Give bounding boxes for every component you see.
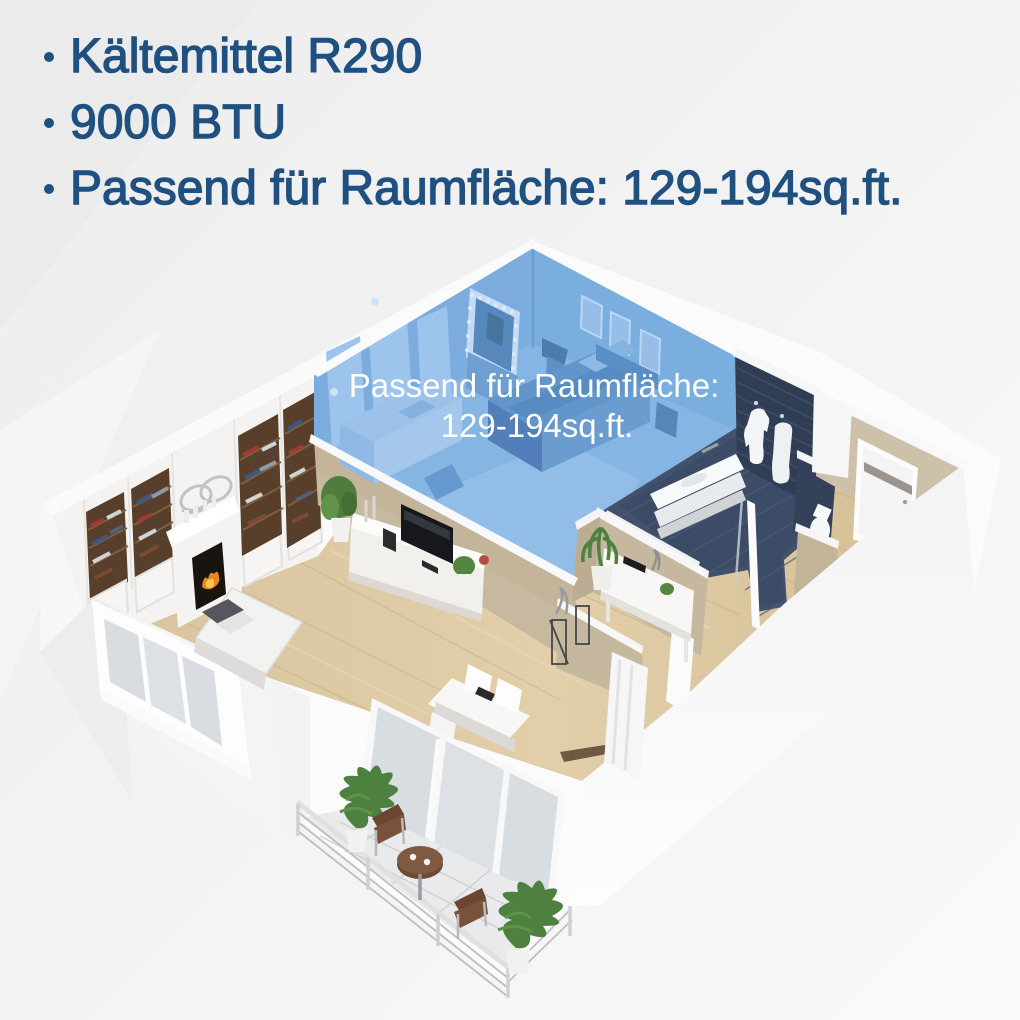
svg-text:Kältemittel R290: Kältemittel R290 <box>70 30 422 83</box>
svg-text:Passend für Raumfläche:: Passend für Raumfläche: <box>349 367 720 404</box>
svg-text:9000 BTU: 9000 BTU <box>70 96 286 149</box>
svg-text:129-194sq.ft.: 129-194sq.ft. <box>441 407 634 444</box>
svg-text:Passend für Raumfläche: 129-19: Passend für Raumfläche: 129-194sq.ft. <box>70 162 902 215</box>
